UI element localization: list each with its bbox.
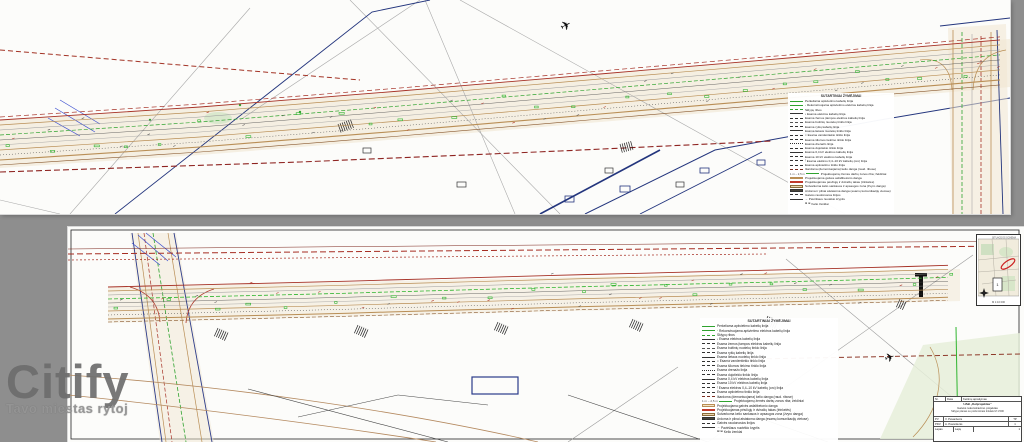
legend-swatch <box>790 189 803 192</box>
legend-swatch <box>702 343 715 344</box>
legend-swatch <box>702 374 715 375</box>
legend-swatch <box>702 361 715 362</box>
legend-swatch <box>790 148 803 149</box>
legend-label: Esama žemos įtampos elektros kabelių lin… <box>717 342 781 346</box>
legend-swatch <box>790 169 803 170</box>
plane-symbol-bottom: ✈ <box>883 349 897 365</box>
plan-screenshot: ✈ SUTARTINIAI ŽYMĖJIMAI Perkeliama apšvi… <box>0 0 1024 442</box>
legend-swatch <box>702 357 715 358</box>
legend-label: Sklypų ribos <box>717 333 735 337</box>
legend-swatch <box>790 126 803 127</box>
tb-name1: V. Pavardenis <box>944 417 1009 421</box>
legend-bottom: SUTARTINIAI ŽYMĖJIMAI Perkeliama apšviet… <box>700 318 838 442</box>
legend-swatch <box>790 177 803 180</box>
legend-swatch <box>790 143 803 144</box>
tb-sheets: 1 <box>974 427 1021 432</box>
legend-swatch <box>702 427 715 428</box>
legend-swatch <box>790 130 803 131</box>
tb-h3: Keitimų aprašymas <box>962 397 1021 401</box>
bottom-plan-drawing: ✈ <box>68 227 1024 442</box>
legend-swatch <box>702 423 715 424</box>
legend-row: ⊠ ⊞Kelio ženklai <box>702 430 836 434</box>
tb-name2: A. Pavardenis <box>944 422 1009 426</box>
bottom-sheet-plan: ✈ <box>68 227 1024 442</box>
legend-label: Paviršiaus nuotėkio kryptis <box>721 426 759 430</box>
legend-label: Rekonstruojama apšvietimo elektros kabel… <box>719 329 790 333</box>
tb-stage: TP <box>1009 417 1021 421</box>
legend-swatch <box>702 335 715 336</box>
tb-role1: PV <box>934 417 944 421</box>
tb-sheets-label: Lapų <box>954 427 974 432</box>
legend-title: SUTARTINIAI ŽYMĖJIMAI <box>790 94 892 98</box>
title-block: Nr. Data Keitimų aprašymas UAB „Kelproje… <box>933 396 1022 442</box>
inset-title: SITUACIJOS SCHEMA <box>992 236 1016 239</box>
legend-label: Esama ryšių kabelių linija <box>717 351 754 355</box>
legend-swatch <box>790 139 803 140</box>
legend-swatch <box>790 181 803 184</box>
legend-label: Esama vandentiekio tinklo linija <box>720 359 765 363</box>
legend-swatch <box>702 348 715 349</box>
legend-row: ⊠ ⊞Kelio ženklai <box>790 201 892 205</box>
legend-label: Esama elektros 0,4–10 kV kabelių (oro) l… <box>719 386 783 390</box>
legend-swatch <box>702 383 715 384</box>
legend-swatch <box>790 118 803 119</box>
legend-label: Esama lietaus nuotekų tinklo linija <box>717 355 766 359</box>
legend-label: Esama dujotiekio tinklo linija <box>717 373 758 377</box>
legend-label: Projektuojama gatvės asfaltbetonio danga <box>717 404 778 408</box>
legend-swatch <box>790 152 803 153</box>
legend-swatch <box>790 105 803 106</box>
legend-swatch <box>790 101 803 102</box>
legend-label: Esama elektros kabelių linija <box>719 337 760 341</box>
tb-sheet-label: Lapas <box>934 427 954 432</box>
top-sheet-plan: ✈ SUTARTINIAI ŽYMĖJIMAI Perkeliama apšvi… <box>0 0 1010 214</box>
legend-swatch <box>790 185 803 188</box>
legend-swatch <box>790 160 803 161</box>
legend-swatch <box>702 409 715 412</box>
legend-swatch <box>702 326 715 327</box>
legend-top: SUTARTINIAI ŽYMĖJIMAI Perkeliama apšviet… <box>788 93 894 214</box>
legend-swatch <box>702 365 715 366</box>
legend-swatch <box>702 417 715 420</box>
legend-label: Gatvės raudonosios linijos <box>717 421 755 425</box>
legend-label: Ardoma ir pilnai atstatoma danga (esamų … <box>717 417 808 421</box>
legend-swatch <box>702 396 715 397</box>
tb-h2: Data <box>946 397 962 401</box>
inset-caption: M 1:10 000 <box>978 302 1019 305</box>
legend-label: Esama 10 kV elektros kabelių linija <box>717 381 767 385</box>
inset-location-map: 1 SITUACIJOS SCHEMA M 1:10 000 <box>976 234 1021 306</box>
legend-swatch <box>702 370 715 371</box>
legend-swatch <box>790 113 803 114</box>
legend-label: Sutvarkoma kelio sankasos ir apsaugos zo… <box>717 412 803 416</box>
legend-label: Kelio ženklai <box>811 202 828 206</box>
legend-swatch <box>702 404 715 407</box>
legend-swatch <box>790 122 803 123</box>
legend-swatch <box>790 135 803 136</box>
legend-label: Kelio ženklai <box>724 430 742 434</box>
legend-swatch <box>702 339 715 340</box>
legend-title: SUTARTINIAI ŽYMĖJIMAI <box>702 319 836 323</box>
tb-sheet: 1 <box>1009 422 1021 426</box>
legend-label: Esama 0,4 kV elektros kabelių linija <box>717 377 768 381</box>
legend-swatch <box>702 413 715 416</box>
legend-swatch <box>806 173 819 174</box>
legend-swatch <box>790 194 803 195</box>
legend-swatch <box>702 379 715 380</box>
legend-label: Esama buitinių nuotekų tinklo linija <box>717 346 767 350</box>
legend-label: Perkeliama apšvietimo kabelių linija <box>717 324 768 328</box>
legend-swatch <box>790 199 803 200</box>
legend-swatch <box>790 165 803 166</box>
plane-symbol-top: ✈ <box>557 16 574 34</box>
legend-label: Projektuojamų žemės darbų zonos riba; že… <box>734 399 804 403</box>
legend-label: Esama šilumos tiekimo tinklo linija <box>717 364 766 368</box>
legend-swatch <box>719 401 732 402</box>
legend-swatch <box>702 330 715 331</box>
tb-h1: Nr. <box>934 397 946 401</box>
legend-label: Projektuojamas pėsčiųjų ir dviračių taka… <box>717 408 791 412</box>
legend-label: Esama apšvietimo tinklo linija <box>717 390 759 394</box>
tb-role2: PDV <box>934 422 944 426</box>
legend-swatch <box>790 156 803 157</box>
legend-label: Esama drenažo linija <box>717 368 747 372</box>
tb-title2: Sklypo planas su požeminiais tinklais M … <box>934 410 1021 413</box>
legend-swatch <box>790 109 803 110</box>
legend-swatch <box>702 387 715 388</box>
legend-swatch <box>702 352 715 353</box>
legend-label: Išardoma (demontuojama) kelio danga (rau… <box>717 395 793 399</box>
legend-swatch <box>702 392 715 393</box>
